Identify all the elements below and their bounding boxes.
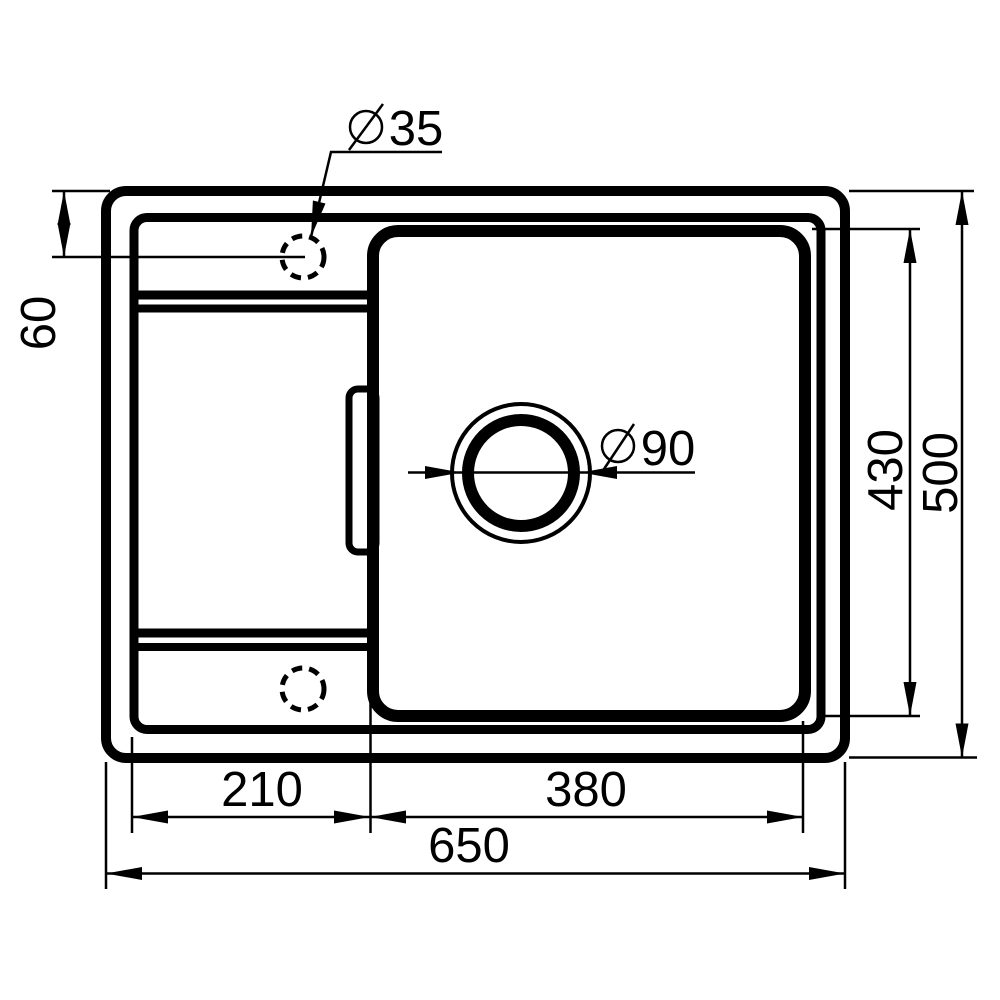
diameter-icon [349,104,383,150]
dim-label-bowl-width: 380 [545,763,627,817]
sink-outline [106,191,845,758]
dim-label-faucet-offset: 60 [12,296,66,351]
arrowhead-right [334,811,370,824]
arrowhead-right [581,466,617,479]
dimension-bowl-width-380: 380 [370,721,803,833]
diameter-icon [602,424,634,472]
arrowhead-down [58,223,71,257]
dim-label-drain: 90 [641,422,696,476]
dim-label-drainer-width: 210 [221,763,303,817]
arrowhead-left [132,811,168,824]
dim-label-faucet-hole: 35 [389,102,444,156]
arrowhead-left [106,867,142,880]
dimension-overall-width-650: 650 [106,762,845,889]
drawing-canvas: 35 60 90 430 500 [0,0,1000,1000]
sink-technical-drawing: 35 60 90 430 500 [0,0,1000,1000]
arrowhead-up [956,191,969,225]
arrowhead-left [425,466,461,479]
dim-label-overall-width: 650 [428,819,510,873]
arrowhead-down [956,724,969,758]
arrowhead-right [767,811,803,824]
dim-label-bowl-length: 430 [859,429,913,511]
arrowhead-right [809,867,845,880]
arrowhead-down [904,682,917,716]
arrowhead-up [58,191,71,225]
arrowhead-up [904,229,917,263]
sink-outer-rim [106,191,845,758]
dim-label-overall-depth: 500 [914,432,968,514]
faucet-hole-bottom [282,668,324,710]
dimension-bowl-length-430: 430 [812,229,920,716]
arrowhead-left [370,811,406,824]
